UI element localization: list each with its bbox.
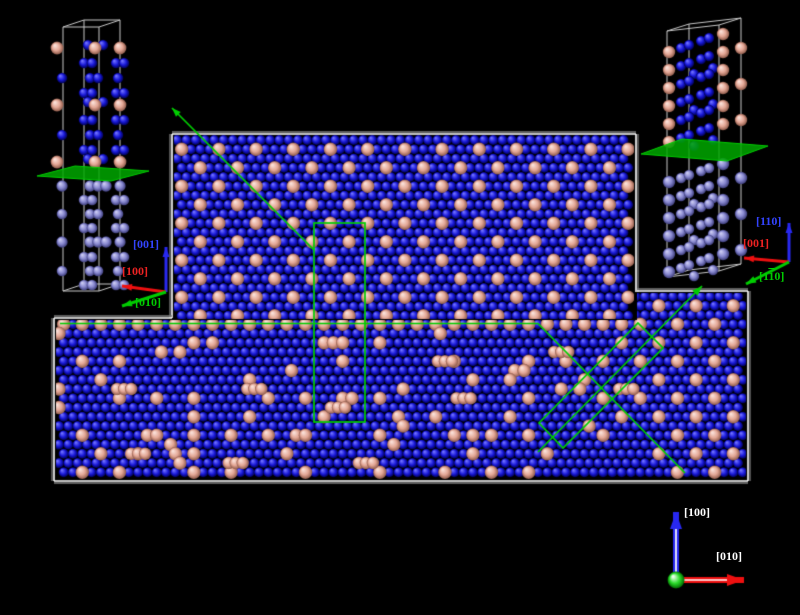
simulation-viewport[interactable] xyxy=(0,0,800,615)
scene: [001] [100] [010] [110] [001] [110] [100… xyxy=(0,0,800,615)
